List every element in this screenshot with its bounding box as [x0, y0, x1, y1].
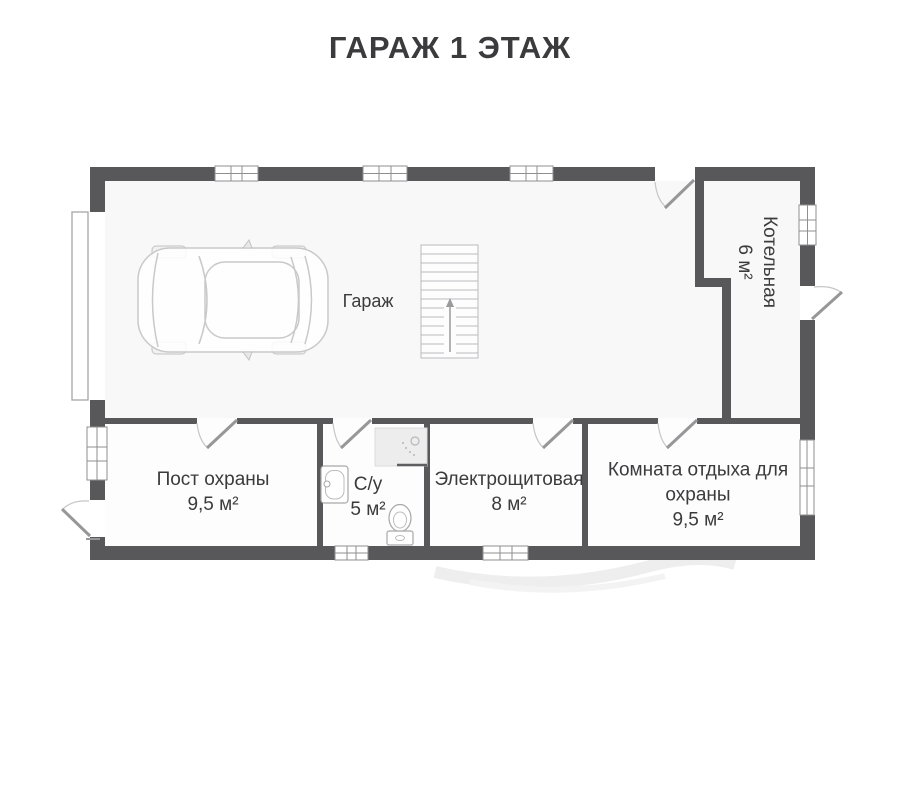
- floor-plan-page: ГАРАЖ 1 ЭТАЖ: [0, 0, 900, 800]
- window: [335, 546, 368, 560]
- room-name: С/у: [350, 472, 385, 497]
- room-name: Пост охраны: [157, 467, 270, 492]
- toilet-icon: [387, 505, 413, 546]
- room-name: Гараж: [343, 290, 394, 314]
- room-label-security-post: Пост охраны 9,5 м²: [157, 467, 270, 517]
- room-area: 9,5 м²: [157, 492, 270, 517]
- door-left-exterior: [62, 501, 100, 539]
- room-label-garage: Гараж: [343, 290, 394, 314]
- room-label-bathroom: С/у 5 м²: [350, 472, 385, 522]
- room-area: 9,5 м²: [608, 508, 788, 533]
- garage-gate: [72, 212, 88, 400]
- room-area: 5 м²: [350, 497, 385, 522]
- door-boiler-exterior: [812, 287, 842, 319]
- window: [510, 166, 553, 181]
- room-label-boiler: Котельная 6 м²: [732, 216, 782, 308]
- room-label-rest-room: Комната отдыха для охраны 9,5 м²: [608, 457, 788, 532]
- watermark: [435, 559, 735, 590]
- window: [799, 205, 816, 245]
- window: [363, 166, 407, 181]
- floor-plan-drawing: [0, 0, 900, 800]
- sink-icon: [321, 466, 348, 503]
- room-name-line1: Комната отдыха для: [608, 457, 788, 482]
- room-name: Котельная: [757, 216, 782, 308]
- window: [87, 427, 107, 480]
- room-area: 8 м²: [434, 492, 583, 517]
- window: [483, 546, 528, 560]
- room-area: 6 м²: [732, 216, 757, 308]
- room-label-electrical: Электрощитовая 8 м²: [434, 467, 583, 517]
- shower-icon: [375, 428, 427, 466]
- car-icon: [138, 240, 328, 360]
- room-name-line2: охраны: [608, 482, 788, 507]
- room-name: Электрощитовая: [434, 467, 583, 492]
- window: [800, 440, 814, 515]
- stairs-icon: [421, 245, 478, 358]
- window: [215, 166, 258, 181]
